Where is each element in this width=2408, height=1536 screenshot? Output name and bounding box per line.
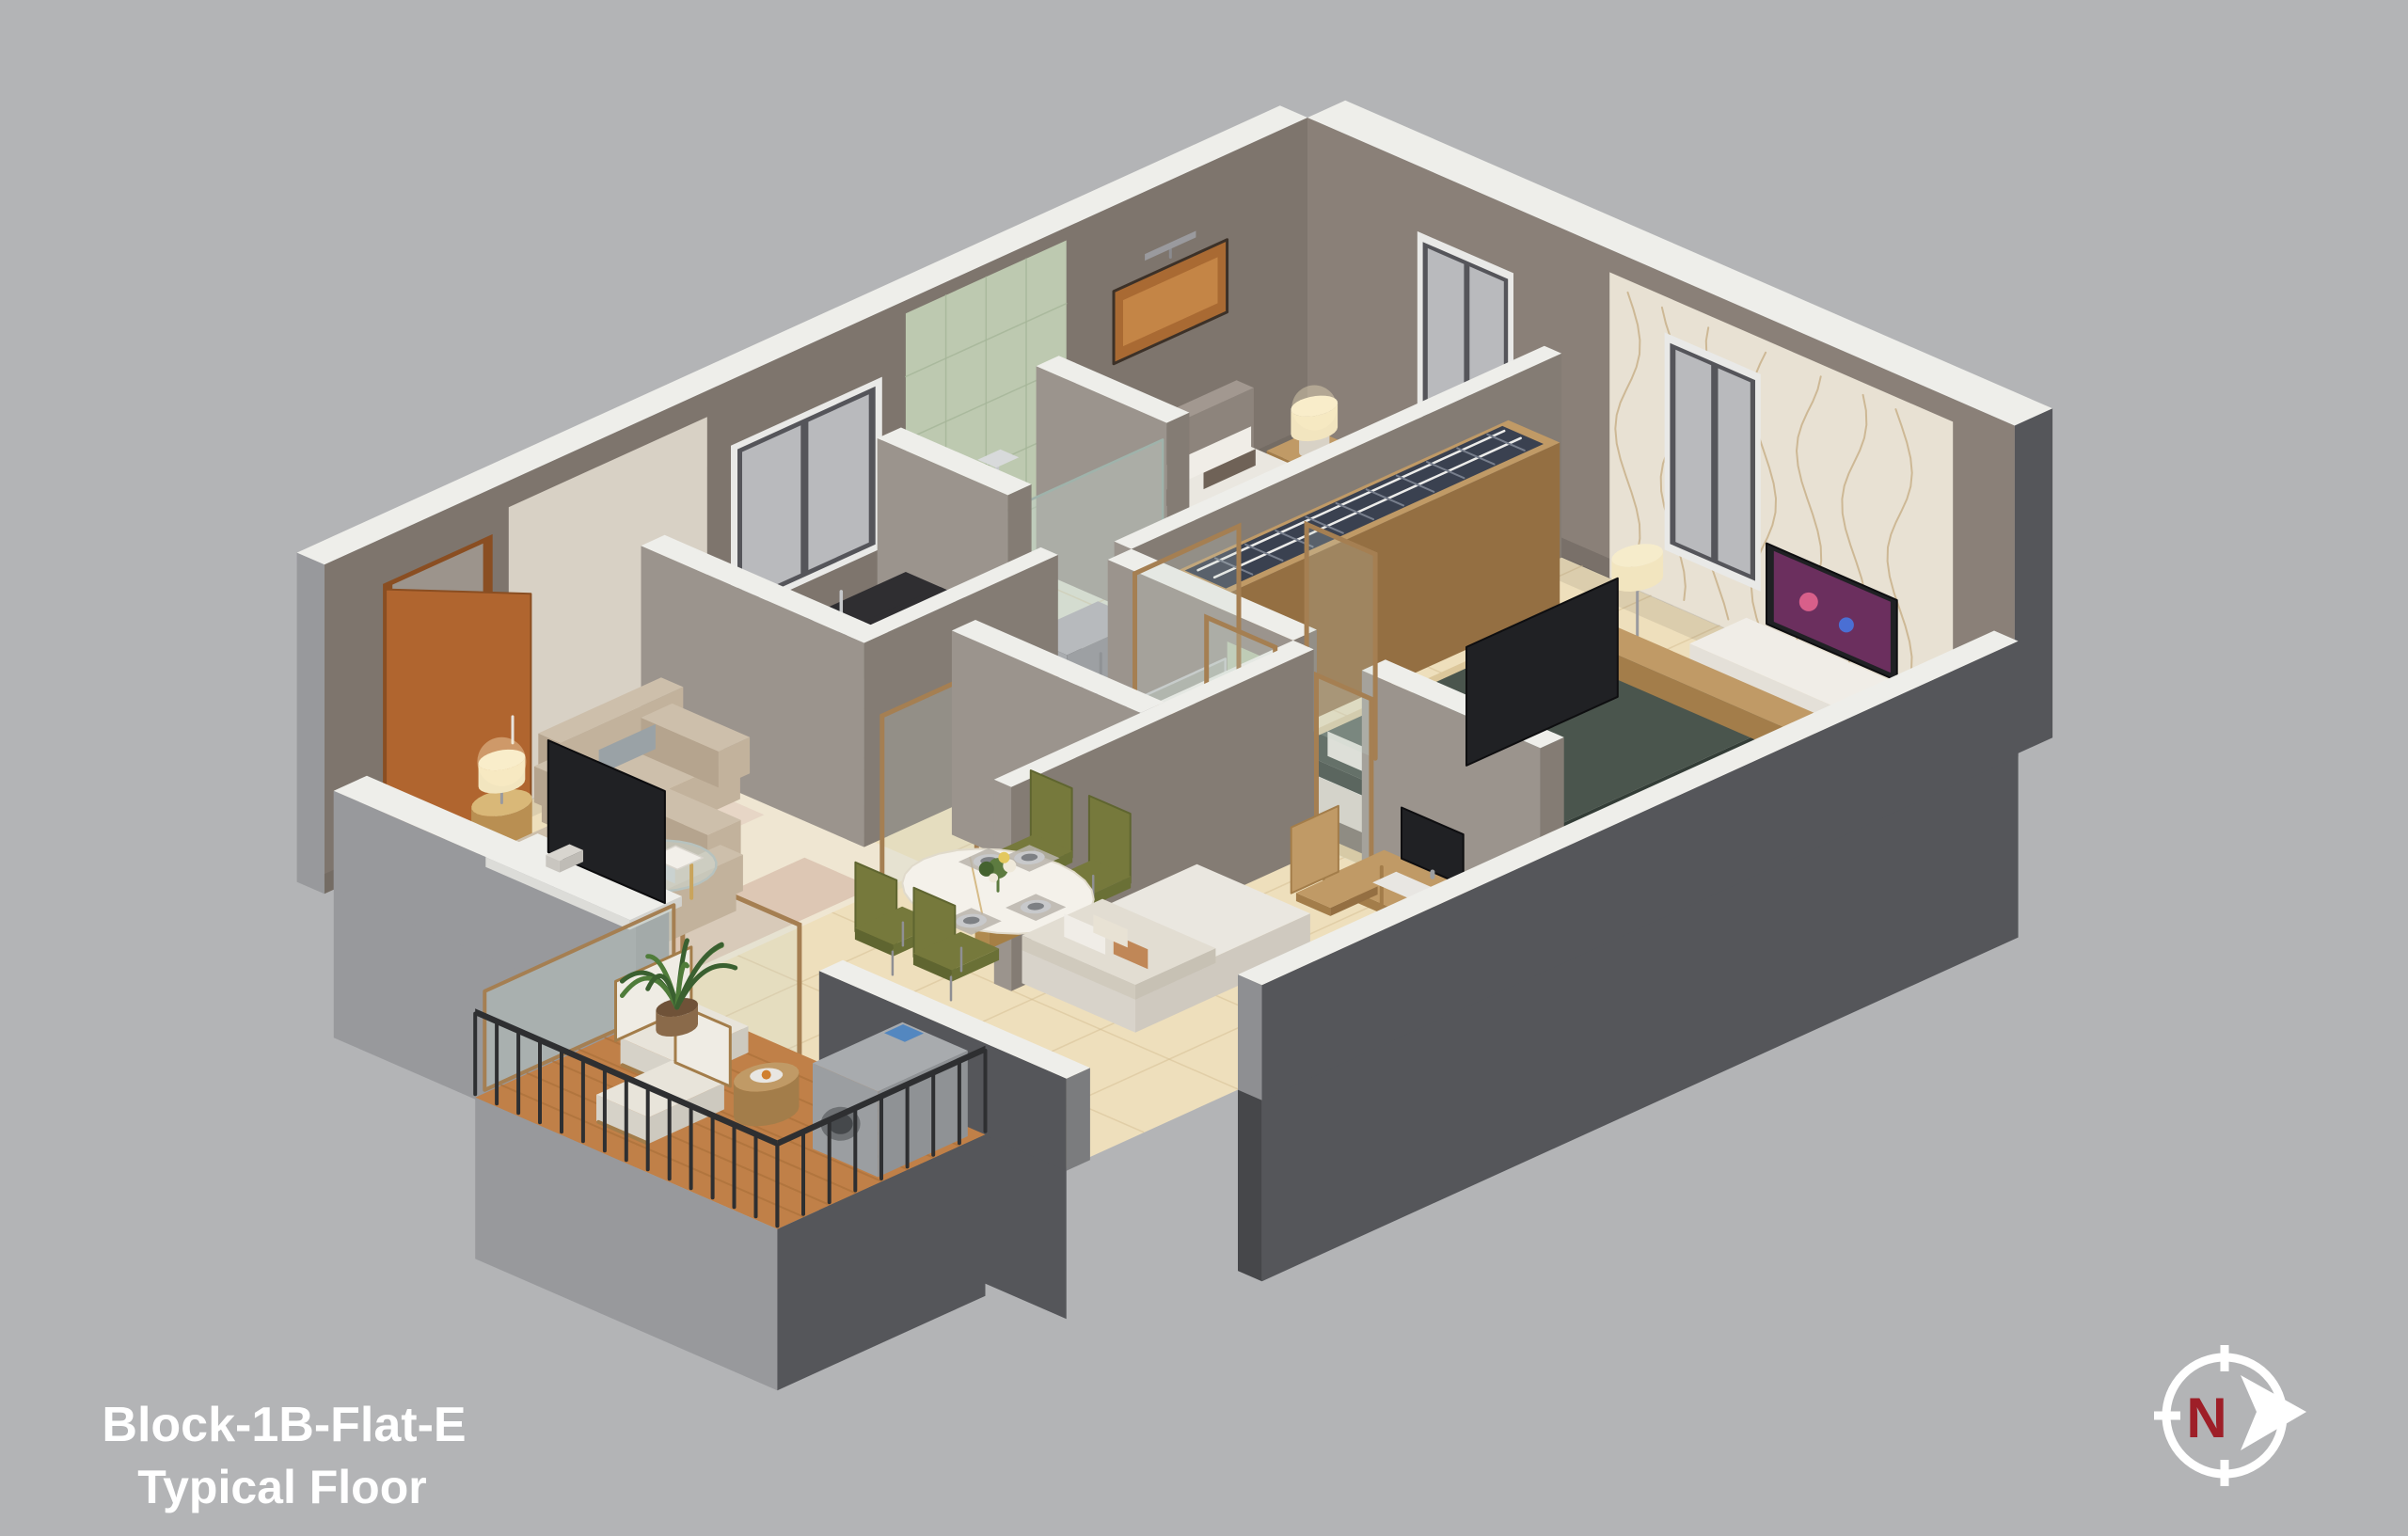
compass-north-label: N: [2186, 1386, 2226, 1449]
master-window: [1665, 332, 1761, 592]
floor-plan-render: Block-1B-Flat-E Typical Floor N: [0, 0, 2408, 1536]
floor-plan-canvas: Block-1B-Flat-E Typical Floor N: [0, 0, 2408, 1536]
title-line-2: Typical Floor: [137, 1461, 426, 1513]
title-line-1: Block-1B-Flat-E: [102, 1398, 466, 1452]
balcony-table: [734, 1063, 800, 1127]
